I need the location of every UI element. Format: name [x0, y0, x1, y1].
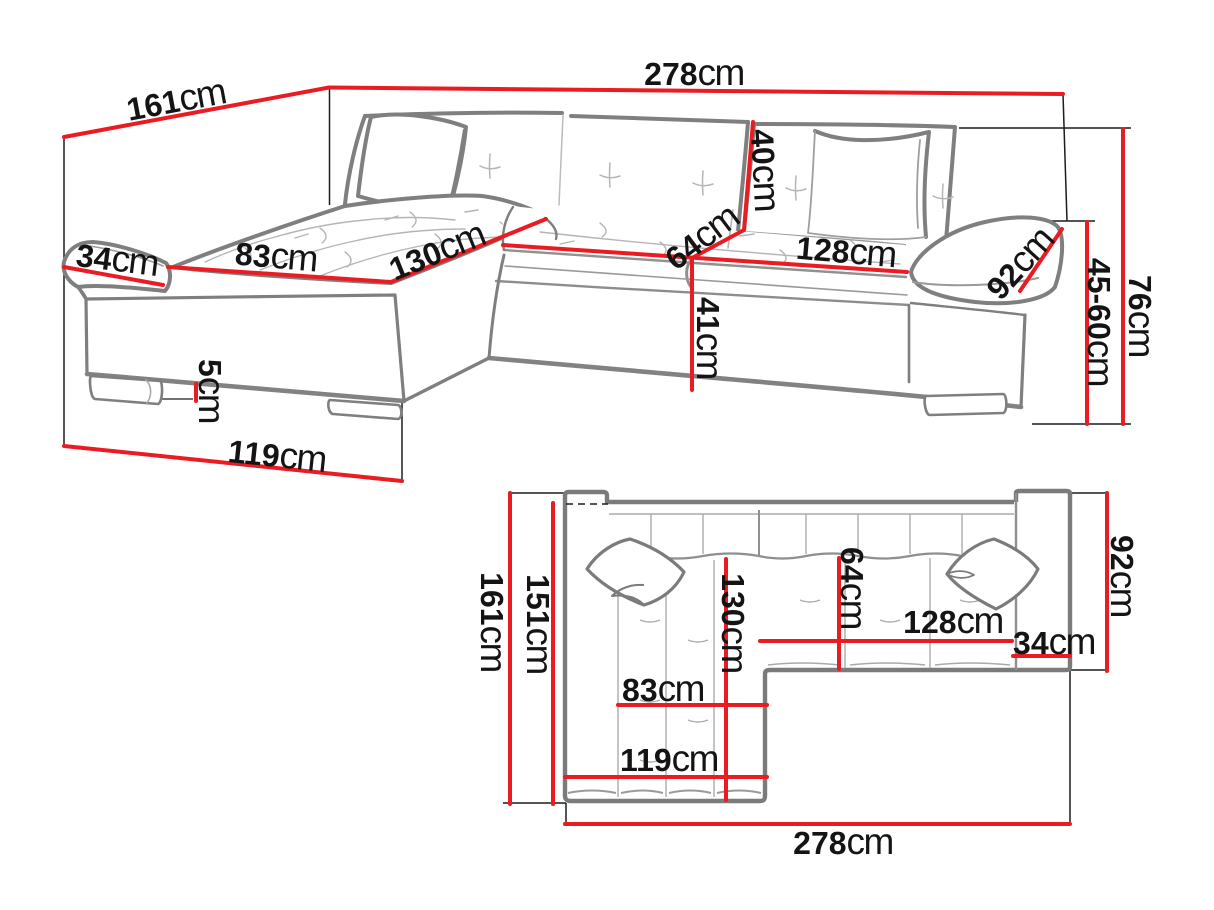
svg-text:278cm: 278cm	[793, 821, 893, 862]
svg-text:278cm: 278cm	[644, 52, 744, 93]
svg-text:151cm: 151cm	[519, 574, 560, 674]
svg-text:128cm: 128cm	[903, 600, 1003, 641]
svg-text:119cm: 119cm	[226, 429, 328, 480]
svg-text:130cm: 130cm	[714, 573, 755, 673]
svg-text:83cm: 83cm	[622, 668, 704, 709]
svg-text:161cm: 161cm	[123, 70, 229, 128]
svg-text:161cm: 161cm	[473, 572, 514, 672]
svg-text:41cm: 41cm	[689, 297, 730, 379]
svg-text:45-60cm: 45-60cm	[1080, 258, 1121, 386]
svg-text:64cm: 64cm	[833, 547, 874, 629]
svg-text:83cm: 83cm	[234, 232, 319, 280]
svg-text:92cm: 92cm	[1103, 535, 1144, 617]
svg-text:76cm: 76cm	[1121, 275, 1162, 357]
svg-text:5cm: 5cm	[191, 359, 232, 423]
svg-text:119cm: 119cm	[620, 738, 718, 779]
svg-text:40cm: 40cm	[743, 128, 788, 212]
svg-text:34cm: 34cm	[1013, 621, 1095, 662]
